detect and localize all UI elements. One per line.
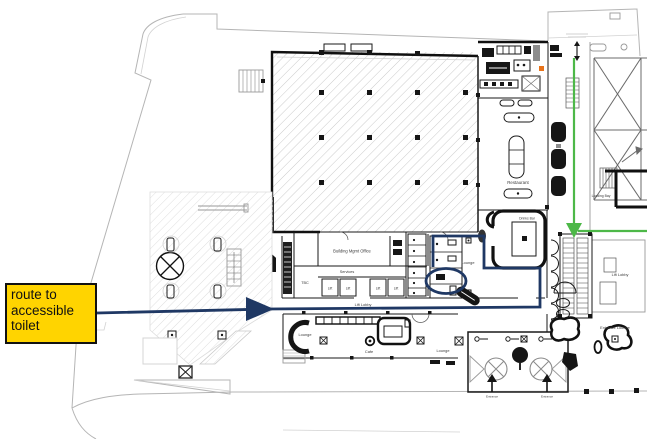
loading-bay-label: Loading Bay: [592, 194, 611, 198]
drinks-bar-label: Drinks Bar: [519, 217, 536, 221]
cafe-bar: [378, 318, 410, 344]
door-icons: [475, 336, 552, 342]
sofa: [454, 285, 481, 308]
restaurant-label: Restaurant: [507, 180, 529, 185]
services-label: Services: [340, 270, 355, 274]
destination-circle: [426, 269, 466, 294]
entrance-label: Entrance: [541, 395, 553, 399]
restaurant-area: Restaurant: [476, 93, 566, 210]
annotation-text: route to accessible toilet: [11, 287, 74, 333]
lounge-strip: Lounge Cafe Lounge: [283, 314, 458, 365]
lounge-right-label: Lounge: [437, 348, 450, 353]
lift-label: Lift: [328, 287, 333, 291]
revolving-door-icon: [485, 358, 507, 380]
entrance-label: Entrance: [486, 395, 498, 399]
office-block: Lift Lift Lift Lift Building Mgmt Office…: [282, 232, 448, 298]
roof-truss: [594, 58, 647, 200]
floor-plan-page: Restaurant Lift Lift Lift Lift Buil: [0, 0, 647, 439]
tbc-room-label: TBC: [301, 281, 309, 285]
lift-label: Lift: [346, 287, 351, 291]
entrance-lounge-label: Entrance Lounge: [600, 325, 630, 330]
entrance-plaza: [134, 192, 272, 394]
round-table: [512, 347, 528, 363]
lift-lobby-corridor: Lift Lobby: [282, 298, 545, 323]
curved-seat: [291, 322, 309, 351]
escalators: [558, 232, 592, 318]
cafe-label: Cafe: [365, 349, 373, 354]
lift-lobby-label: Lift Lobby: [355, 302, 372, 307]
building-office-label: Building Mgmt Office: [333, 249, 371, 254]
main-hall: [239, 44, 478, 278]
floor-plan-drawing: Restaurant Lift Lift Lift Lift Buil: [0, 0, 647, 439]
revolving-door-icon: [530, 358, 552, 380]
lounge-mid-label: Lounge: [462, 260, 475, 265]
lift-lobby-right-label: Lift Lobby: [612, 272, 629, 277]
column-x-marker: [179, 366, 192, 378]
equipment-highlight: [539, 66, 544, 71]
annotation-callout: route to accessible toilet: [5, 283, 97, 344]
lift-label: Lift: [394, 287, 399, 291]
revolving-door-icon: [157, 253, 184, 280]
lounge-left-label: Lounge: [299, 332, 312, 337]
drinks-bar: Drinks Bar: [478, 211, 545, 268]
lift-label: Lift: [376, 287, 381, 291]
